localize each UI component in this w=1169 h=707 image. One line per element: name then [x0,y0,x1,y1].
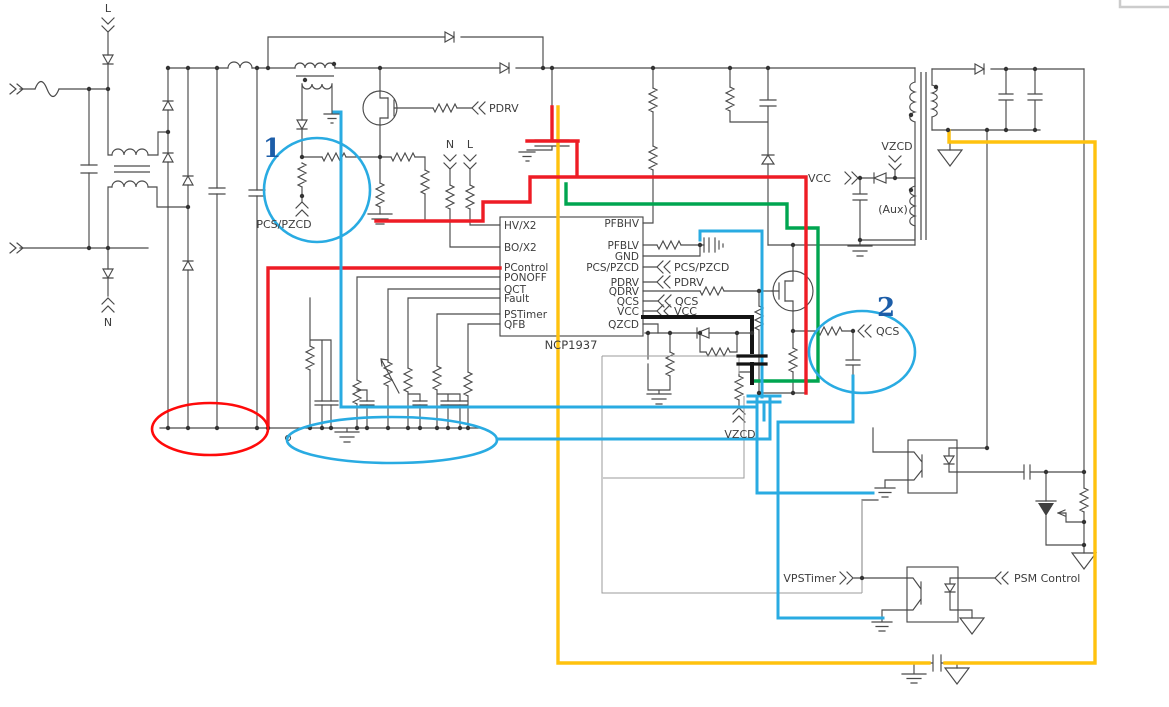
ic-pin-bo-x2: BO/X2 [504,242,537,254]
rc-network-forest [310,277,500,428]
psm-chevron [995,572,1008,584]
label-aux-winding: (Aux) [878,203,908,216]
label-pcs-pzcd-pfc: PCS/PZCD [256,218,311,231]
label-qcs-sense: QCS [876,325,899,338]
input-emi-section [20,32,188,296]
bulk-capacitor [519,68,569,161]
cyan-trace [334,112,883,618]
tl431-regulator [1038,503,1054,516]
highlight-traces [268,107,1095,663]
qcs-sense-chevron [858,325,871,337]
ic-pin-pcs-pzcd: PCS/PZCD [586,262,639,274]
boost-diodes [445,32,509,73]
ycap-secondary-ground [945,668,969,684]
pcs-pzcd-chevron [296,202,308,216]
ground-rail [160,428,480,442]
junction-dots [87,62,1086,580]
label-pdrv-send: PDRV [674,276,704,289]
label-line-input: L [105,2,112,15]
forest-capacitors [315,401,467,405]
schematic-labels: L N PDRV PCS/PZCD N L PCS/PZCD PDRV QCS … [104,2,1080,585]
label-pdrv-pfc: PDRV [489,102,519,115]
n-chevron [102,298,114,312]
label-vpstimer: VPSTimer [783,572,836,585]
ic-pin-qzcd: QZCD [608,319,639,331]
label-vcc-send: VCC [674,305,697,318]
vcc-aux-chevron [845,172,858,184]
label-vcc-aux: VCC [808,172,831,185]
pdrv-chevron [472,102,485,114]
pfc-choke-main [295,63,335,68]
qzcd-network [645,333,752,404]
vcc-diode [874,173,886,183]
label-vzcd-aux: VZCD [881,140,912,153]
pfblv-cap-ground [704,238,723,252]
ic-pin-fault: Fault [504,293,529,305]
optocoupler-2 [854,500,995,634]
label-psm-control: PSM Control [1014,572,1080,585]
blue-annotation-circle-2 [809,311,915,393]
y-capacitor [902,655,969,684]
bridge-rectifier [103,55,265,428]
ic-pin-hv-x2: HV/X2 [504,220,537,232]
frame-artifact [1120,0,1169,7]
input-terminal-chevrons [10,84,23,253]
secondary-winding [932,85,937,117]
pfc-choke-aux [302,84,332,89]
secondary-ground [938,150,962,166]
rail-inductor [228,62,252,68]
ic-pin-ponoff: PONOFF [504,272,547,284]
l-chevron [102,18,114,32]
fuse [35,82,59,97]
label-line-sense: L [467,138,474,151]
annotation-marker-1: 1 [263,134,281,164]
vzcd-divider-chevron [733,408,745,422]
blue-ground-ellipse [287,417,497,463]
schematic-page: L N PDRV PCS/PZCD N L PCS/PZCD PDRV QCS … [0,0,1169,707]
routing-outline [602,356,862,593]
nl-sense-chevrons [444,155,476,169]
opto2-secondary-ground [960,618,984,634]
schematic-canvas: L N PDRV PCS/PZCD N L PCS/PZCD PDRV QCS … [0,0,1169,707]
flyback-transformer [910,68,938,245]
ic-pin-labels: HV/X2 BO/X2 PControl PONOFF QCT Fault PS… [504,218,640,352]
feedback-network [957,69,1096,569]
label-pcs-pzcd-send: PCS/PZCD [674,261,729,274]
vpstimer-chevron [840,572,853,584]
nl-sense [450,169,500,247]
black-vcc-trace [643,317,752,383]
secondary-output [932,64,1084,448]
optocoupler-1 [873,428,987,497]
label-neutral-input: N [104,316,112,329]
feedback-ground [1072,553,1096,569]
output-diode [975,64,984,74]
label-neutral-sense: N [446,138,454,151]
label-vzcd-divider: VZCD [724,428,755,441]
annotation-marker-2: 2 [877,293,895,323]
ic-pin-vcc: VCC [617,306,639,318]
pfc-stage [168,32,915,224]
ic-pin-qfb: QFB [504,319,526,331]
ic-part-number: NCP1937 [545,338,598,352]
snubber-diode [762,155,774,164]
vzcd-aux-chevron [889,156,901,170]
ic-pin-pfbhv: PFBHV [604,218,639,230]
common-mode-choke [112,149,148,187]
send-chevrons [657,261,671,317]
x-capacitor [81,165,97,173]
pcs-diode [297,120,307,129]
